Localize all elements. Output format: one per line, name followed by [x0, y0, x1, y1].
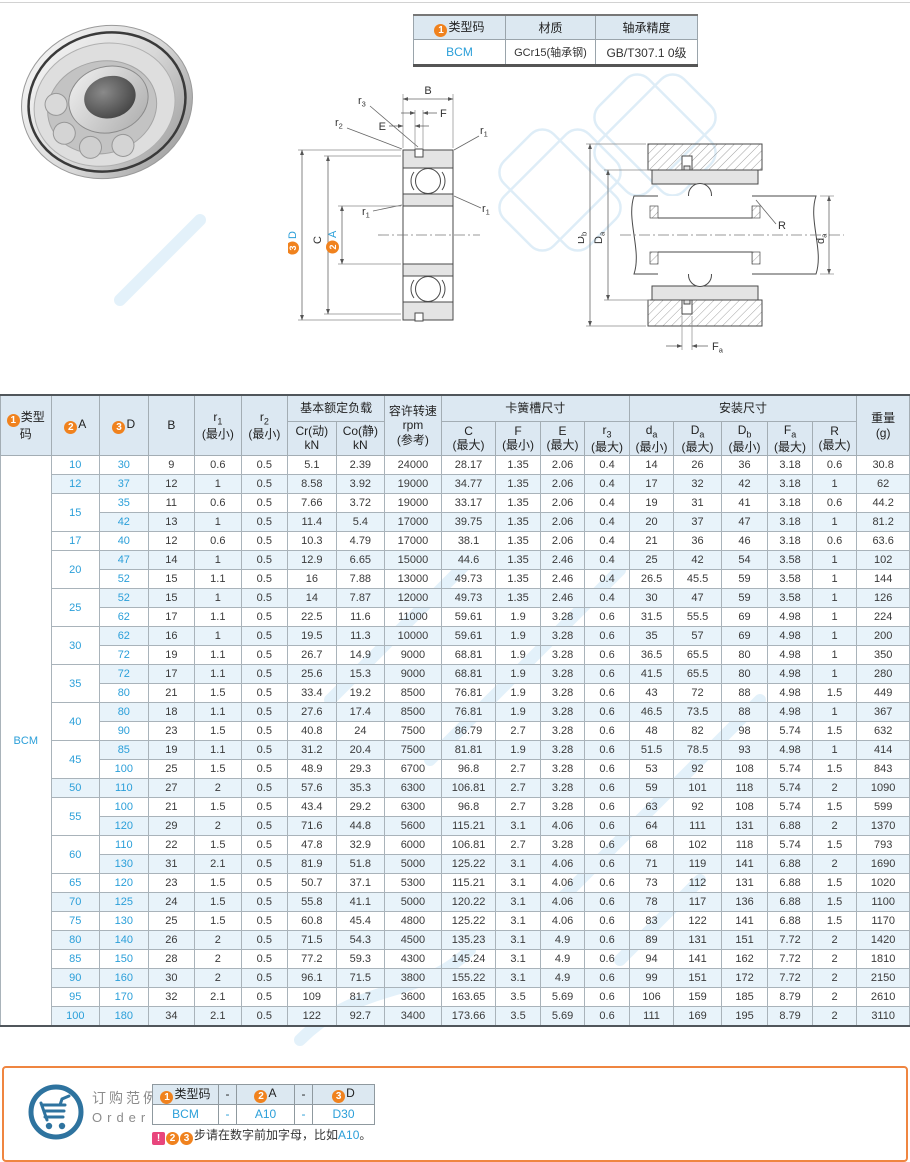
order-table: 1类型码 - 2A - 3D BCM - A10 - D30	[152, 1084, 375, 1125]
value-cell: 4.98	[768, 627, 812, 646]
order-title-en: Order	[92, 1110, 150, 1125]
order-header-type: 1类型码	[153, 1085, 219, 1105]
value-cell: 19000	[385, 494, 442, 513]
value-cell: 1	[812, 475, 857, 494]
value-cell: 0.6	[585, 931, 630, 950]
table-row: 4585191.10.531.220.4750081.811.93.280.65…	[1, 741, 910, 760]
value-cell: 135.23	[441, 931, 496, 950]
svg-text:C: C	[312, 236, 324, 244]
value-cell: 4.9	[540, 950, 584, 969]
value-cell: 0.5	[241, 874, 288, 893]
value-cell: 0.5	[241, 893, 288, 912]
value-cell: 27	[148, 779, 195, 798]
value-cell: 81.2	[857, 513, 910, 532]
value-cell: 7500	[385, 741, 442, 760]
value-cell: 92	[674, 760, 722, 779]
value-cell: 59	[721, 589, 768, 608]
value-cell: 57.6	[288, 779, 337, 798]
value-cell: 59.61	[441, 627, 496, 646]
value-cell: 224	[857, 608, 910, 627]
d-value-cell: 72	[100, 665, 149, 684]
header-f: F(最小)	[496, 421, 540, 456]
value-cell: 106.81	[441, 836, 496, 855]
value-cell: 5.74	[768, 760, 812, 779]
header-rpm: 容许转速rpm(参考)	[385, 395, 442, 456]
value-cell: 19.2	[336, 684, 385, 703]
header-Db: Db(最小)	[721, 421, 768, 456]
value-cell: 9	[148, 456, 195, 475]
value-cell: 0.4	[585, 456, 630, 475]
value-cell: 1.9	[496, 684, 540, 703]
value-cell: 1.5	[195, 893, 242, 912]
value-cell: 136	[721, 893, 768, 912]
value-cell: 68.81	[441, 646, 496, 665]
value-cell: 1	[812, 551, 857, 570]
value-cell: 59.3	[336, 950, 385, 969]
value-cell: 1.5	[195, 836, 242, 855]
value-cell: 42	[674, 551, 722, 570]
value-cell: 4.79	[336, 532, 385, 551]
value-cell: 21	[629, 532, 673, 551]
value-cell: 83	[629, 912, 673, 931]
value-cell: 7.88	[336, 570, 385, 589]
value-cell: 1.5	[812, 760, 857, 779]
d-value-cell: 42	[100, 513, 149, 532]
value-cell: 122	[674, 912, 722, 931]
value-cell: 16	[148, 627, 195, 646]
value-cell: 102	[857, 551, 910, 570]
value-cell: 7.72	[768, 931, 812, 950]
value-cell: 15.3	[336, 665, 385, 684]
order-example-box: 订购范例 Order 1类型码 - 2A - 3D BCM - A10 - D3…	[2, 1066, 908, 1162]
main-data-table: 1类型码 2A 3D B r1(最小) r2(最小) 基本额定负载 容许转速rp…	[0, 394, 910, 1027]
value-cell: 0.6	[585, 874, 630, 893]
table-row: 62171.10.522.511.61100059.611.93.280.631…	[1, 608, 910, 627]
header-da: da(最小)	[629, 421, 673, 456]
a-value-cell: 12	[51, 475, 100, 494]
value-cell: 81.81	[441, 741, 496, 760]
value-cell: 7.87	[336, 589, 385, 608]
value-cell: 15	[148, 589, 195, 608]
badge-1-icon: 1	[434, 24, 447, 37]
value-cell: 46.5	[629, 703, 673, 722]
value-cell: 101	[674, 779, 722, 798]
header-R: R(最大)	[812, 421, 857, 456]
a-value-cell: 17	[51, 532, 100, 551]
value-cell: 1.5	[812, 874, 857, 893]
value-cell: 78.5	[674, 741, 722, 760]
table-row: 80211.50.533.419.2850076.811.93.280.6437…	[1, 684, 910, 703]
value-cell: 21	[148, 798, 195, 817]
table-row: 851502820.577.259.34300145.243.14.90.694…	[1, 950, 910, 969]
d-value-cell: 62	[100, 608, 149, 627]
value-cell: 4500	[385, 931, 442, 950]
value-cell: 0.6	[585, 646, 630, 665]
value-cell: 6300	[385, 798, 442, 817]
value-cell: 1.5	[195, 760, 242, 779]
value-cell: 7.66	[288, 494, 337, 513]
value-cell: 0.6	[585, 627, 630, 646]
value-cell: 3.1	[496, 817, 540, 836]
value-cell: 109	[288, 988, 337, 1007]
value-cell: 98	[721, 722, 768, 741]
value-cell: 2.06	[540, 532, 584, 551]
svg-text:Da: Da	[593, 231, 607, 244]
badge-3-icon: 3	[332, 1090, 345, 1103]
value-cell: 12.9	[288, 551, 337, 570]
value-cell: 38.1	[441, 532, 496, 551]
d-value-cell: 35	[100, 494, 149, 513]
value-cell: 20.4	[336, 741, 385, 760]
value-cell: 5300	[385, 874, 442, 893]
value-cell: 141	[721, 855, 768, 874]
value-cell: 34	[148, 1007, 195, 1027]
value-cell: 1	[812, 646, 857, 665]
value-cell: 1.5	[195, 684, 242, 703]
value-cell: 2	[195, 779, 242, 798]
value-cell: 414	[857, 741, 910, 760]
value-cell: 1.9	[496, 703, 540, 722]
value-cell: 0.5	[241, 646, 288, 665]
value-cell: 0.5	[241, 1007, 288, 1027]
value-cell: 14.9	[336, 646, 385, 665]
value-cell: 8500	[385, 684, 442, 703]
value-cell: 3.28	[540, 798, 584, 817]
value-cell: 1	[812, 665, 857, 684]
value-cell: 62	[857, 475, 910, 494]
value-cell: 99	[629, 969, 673, 988]
value-cell: 0.6	[812, 532, 857, 551]
a-value-cell: 50	[51, 779, 100, 798]
value-cell: 793	[857, 836, 910, 855]
value-cell: 2150	[857, 969, 910, 988]
a-value-cell: 80	[51, 931, 100, 950]
value-cell: 1.35	[496, 570, 540, 589]
value-cell: 200	[857, 627, 910, 646]
value-cell: 81.7	[336, 988, 385, 1007]
a-value-cell: 55	[51, 798, 100, 836]
header-type-code: 1类型码	[1, 395, 52, 456]
a-value-cell: 100	[51, 1007, 100, 1027]
value-cell: 1.5	[195, 874, 242, 893]
value-cell: 125.22	[441, 855, 496, 874]
header-c: C(最大)	[441, 421, 496, 456]
value-cell: 2.7	[496, 798, 540, 817]
value-cell: 5.74	[768, 779, 812, 798]
d-value-cell: 80	[100, 703, 149, 722]
value-cell: 3.28	[540, 703, 584, 722]
header-co: Co(静)kN	[336, 421, 385, 456]
value-cell: 131	[721, 874, 768, 893]
value-cell: 17	[148, 665, 195, 684]
bearing-photo	[12, 14, 202, 189]
value-cell: 48	[629, 722, 673, 741]
spec-header-type: 1类型码	[414, 15, 506, 40]
value-cell: 172	[721, 969, 768, 988]
value-cell: 69	[721, 608, 768, 627]
value-cell: 24	[336, 722, 385, 741]
value-cell: 14	[629, 456, 673, 475]
value-cell: 0.5	[241, 475, 288, 494]
value-cell: 4.06	[540, 817, 584, 836]
value-cell: 0.5	[241, 665, 288, 684]
d-value-cell: 100	[100, 798, 149, 817]
value-cell: 0.5	[241, 570, 288, 589]
value-cell: 112	[674, 874, 722, 893]
value-cell: 23	[148, 722, 195, 741]
table-row: 1740120.60.510.34.791700038.11.352.060.4…	[1, 532, 910, 551]
value-cell: 47.8	[288, 836, 337, 855]
value-cell: 1	[195, 589, 242, 608]
value-cell: 4.9	[540, 931, 584, 950]
value-cell: 51.5	[629, 741, 673, 760]
value-cell: 155.22	[441, 969, 496, 988]
value-cell: 2	[812, 969, 857, 988]
catalog-page: 1类型码 材质 轴承精度 BCM GCr15(轴承钢) GB/T307.1 0级	[0, 0, 910, 1162]
value-cell: 3.28	[540, 608, 584, 627]
table-row: 901603020.596.171.53800155.223.14.90.699…	[1, 969, 910, 988]
value-cell: 1170	[857, 912, 910, 931]
value-cell: 1.5	[195, 912, 242, 931]
value-cell: 3.5	[496, 988, 540, 1007]
main-table-body: BCM103090.60.55.12.392400028.171.352.060…	[1, 456, 910, 1027]
value-cell: 1.5	[812, 893, 857, 912]
value-cell: 33.17	[441, 494, 496, 513]
value-cell: 0.6	[585, 741, 630, 760]
value-cell: 0.6	[585, 608, 630, 627]
value-cell: 4.06	[540, 912, 584, 931]
d-value-cell: 140	[100, 931, 149, 950]
value-cell: 145.24	[441, 950, 496, 969]
value-cell: 108	[721, 760, 768, 779]
value-cell: 3.18	[768, 456, 812, 475]
value-cell: 0.5	[241, 627, 288, 646]
value-cell: 45.5	[674, 570, 722, 589]
value-cell: 7500	[385, 722, 442, 741]
svg-text:r3: r3	[358, 95, 366, 109]
value-cell: 3.28	[540, 760, 584, 779]
table-row: 95170322.10.510981.73600163.653.55.690.6…	[1, 988, 910, 1007]
value-cell: 125.22	[441, 912, 496, 931]
value-cell: 28	[148, 950, 195, 969]
value-cell: 0.5	[241, 494, 288, 513]
value-cell: 89	[629, 931, 673, 950]
svg-text:2: 2	[328, 244, 338, 249]
value-cell: 2	[195, 817, 242, 836]
value-cell: 6.88	[768, 893, 812, 912]
value-cell: 3.1	[496, 912, 540, 931]
value-cell: 0.5	[241, 817, 288, 836]
value-cell: 2610	[857, 988, 910, 1007]
value-cell: 96.8	[441, 798, 496, 817]
value-cell: 4.98	[768, 646, 812, 665]
table-row: 52151.10.5167.881300049.731.352.460.426.…	[1, 570, 910, 589]
value-cell: 4.98	[768, 665, 812, 684]
value-cell: 3.18	[768, 532, 812, 551]
value-cell: 1.5	[812, 684, 857, 703]
value-cell: 5.74	[768, 798, 812, 817]
value-cell: 25	[148, 760, 195, 779]
value-cell: 80	[721, 646, 768, 665]
value-cell: 34.77	[441, 475, 496, 494]
table-row: 421310.511.45.41700039.751.352.060.42037…	[1, 513, 910, 532]
spec-header-precision: 轴承精度	[596, 15, 698, 40]
a-value-cell: 70	[51, 893, 100, 912]
value-cell: 3.1	[496, 893, 540, 912]
value-cell: 1810	[857, 950, 910, 969]
value-cell: 11.4	[288, 513, 337, 532]
value-cell: 3.58	[768, 570, 812, 589]
svg-text:A: A	[327, 230, 339, 238]
value-cell: 2.06	[540, 456, 584, 475]
cross-section-drawing: B F E r3 r2 r1 r1 r1 C	[288, 80, 523, 385]
value-cell: 5600	[385, 817, 442, 836]
value-cell: 1.9	[496, 741, 540, 760]
value-cell: 14	[288, 589, 337, 608]
badge-3-icon: 3	[112, 421, 125, 434]
value-cell: 2.7	[496, 760, 540, 779]
value-cell: 0.5	[241, 551, 288, 570]
value-cell: 9000	[385, 665, 442, 684]
a-value-cell: 30	[51, 627, 100, 665]
value-cell: 0.6	[585, 779, 630, 798]
a-value-cell: 60	[51, 836, 100, 874]
value-cell: 77.2	[288, 950, 337, 969]
a-value-cell: 40	[51, 703, 100, 741]
d-value-cell: 110	[100, 836, 149, 855]
value-cell: 4.06	[540, 855, 584, 874]
value-cell: 1020	[857, 874, 910, 893]
value-cell: 68.81	[441, 665, 496, 684]
value-cell: 0.4	[585, 551, 630, 570]
value-cell: 9000	[385, 646, 442, 665]
value-cell: 43.4	[288, 798, 337, 817]
value-cell: 119	[674, 855, 722, 874]
value-cell: 1	[812, 741, 857, 760]
value-cell: 1100	[857, 893, 910, 912]
table-row: 3572171.10.525.615.3900068.811.93.280.64…	[1, 665, 910, 684]
table-row: 60110221.50.547.832.96000106.812.73.280.…	[1, 836, 910, 855]
header-b: B	[148, 395, 195, 456]
value-cell: 71.6	[288, 817, 337, 836]
value-cell: 68	[629, 836, 673, 855]
value-cell: 3.18	[768, 494, 812, 513]
exclamation-icon: !	[152, 1132, 165, 1145]
value-cell: 3.28	[540, 646, 584, 665]
value-cell: 1420	[857, 931, 910, 950]
value-cell: 5000	[385, 893, 442, 912]
value-cell: 4.98	[768, 741, 812, 760]
value-cell: 11000	[385, 608, 442, 627]
value-cell: 0.5	[241, 741, 288, 760]
value-cell: 4.98	[768, 684, 812, 703]
value-cell: 49.73	[441, 570, 496, 589]
value-cell: 30	[148, 969, 195, 988]
value-cell: 78	[629, 893, 673, 912]
value-cell: 20	[629, 513, 673, 532]
value-cell: 1.1	[195, 665, 242, 684]
value-cell: 1.5	[812, 912, 857, 931]
value-cell: 19.5	[288, 627, 337, 646]
value-cell: 102	[674, 836, 722, 855]
value-cell: 0.5	[241, 931, 288, 950]
value-cell: 1	[195, 475, 242, 494]
d-value-cell: 125	[100, 893, 149, 912]
value-cell: 24	[148, 893, 195, 912]
value-cell: 93	[721, 741, 768, 760]
cart-icon	[26, 1082, 86, 1142]
spec-table: 1类型码 材质 轴承精度 BCM GCr15(轴承钢) GB/T307.1 0级	[413, 14, 698, 67]
value-cell: 32	[148, 988, 195, 1007]
value-cell: 126	[857, 589, 910, 608]
value-cell: 63.6	[857, 532, 910, 551]
value-cell: 88	[721, 703, 768, 722]
value-cell: 0.5	[241, 532, 288, 551]
value-cell: 17	[148, 608, 195, 627]
value-cell: 1.1	[195, 741, 242, 760]
value-cell: 118	[721, 836, 768, 855]
header-r3: r3(最大)	[585, 421, 630, 456]
svg-text:r1: r1	[480, 125, 488, 139]
value-cell: 6.65	[336, 551, 385, 570]
value-cell: 2.46	[540, 551, 584, 570]
value-cell: 1.9	[496, 665, 540, 684]
value-cell: 94	[629, 950, 673, 969]
value-cell: 117	[674, 893, 722, 912]
value-cell: 0.6	[585, 722, 630, 741]
value-cell: 0.6	[585, 665, 630, 684]
value-cell: 76.81	[441, 684, 496, 703]
order-header-dash2: -	[295, 1085, 313, 1105]
value-cell: 1.35	[496, 589, 540, 608]
value-cell: 2	[812, 817, 857, 836]
value-cell: 185	[721, 988, 768, 1007]
value-cell: 1	[812, 703, 857, 722]
value-cell: 26.5	[629, 570, 673, 589]
table-row: 30621610.519.511.31000059.611.93.280.635…	[1, 627, 910, 646]
badge-1-icon: 1	[7, 414, 20, 427]
value-cell: 15	[148, 570, 195, 589]
value-cell: 3600	[385, 988, 442, 1007]
svg-text:Fa: Fa	[712, 341, 724, 355]
order-value-dash1: -	[219, 1104, 237, 1124]
value-cell: 8500	[385, 703, 442, 722]
value-cell: 0.5	[241, 589, 288, 608]
value-cell: 3110	[857, 1007, 910, 1027]
header-a: 2A	[51, 395, 100, 456]
value-cell: 8.79	[768, 1007, 812, 1027]
value-cell: 54.3	[336, 931, 385, 950]
value-cell: 30.8	[857, 456, 910, 475]
value-cell: 64	[629, 817, 673, 836]
value-cell: 54	[721, 551, 768, 570]
value-cell: 0.5	[241, 779, 288, 798]
value-cell: 5.69	[540, 988, 584, 1007]
svg-text:Db: Db	[578, 232, 589, 244]
value-cell: 1.5	[195, 798, 242, 817]
spec-material: GCr15(轴承钢)	[506, 40, 596, 66]
table-row: 100251.50.548.929.3670096.82.73.280.6539…	[1, 760, 910, 779]
value-cell: 72	[674, 684, 722, 703]
value-cell: 0.6	[585, 855, 630, 874]
value-cell: 632	[857, 722, 910, 741]
value-cell: 3.28	[540, 722, 584, 741]
header-e: E(最大)	[540, 421, 584, 456]
value-cell: 82	[674, 722, 722, 741]
value-cell: 0.5	[241, 722, 288, 741]
value-cell: 1.35	[496, 551, 540, 570]
value-cell: 0.6	[585, 1007, 630, 1027]
